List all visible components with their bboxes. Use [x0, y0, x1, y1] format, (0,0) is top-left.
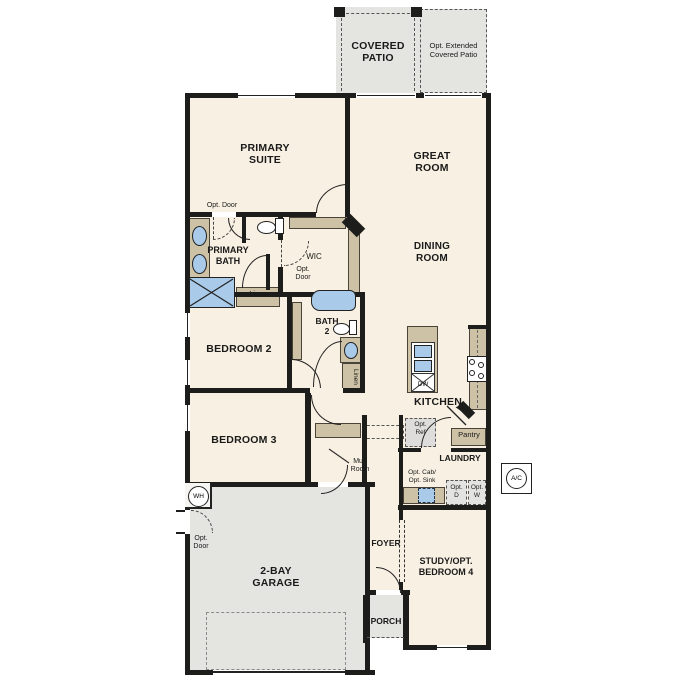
floor-plan: WH A/C COVERED PATIO Opt. Extended Cover… [0, 0, 687, 687]
opt-washer-label: Opt. W [468, 484, 486, 499]
window [437, 645, 467, 650]
opt-cab-sink-label: Opt. Cab/ Opt. Sink [398, 469, 446, 484]
wall [345, 670, 375, 675]
patio-post [411, 7, 422, 17]
opt-cabinet-outline [362, 425, 404, 439]
burner-icon [478, 373, 484, 379]
opt-opening [399, 520, 405, 582]
burner-icon [469, 370, 475, 376]
porch-label: PORCH [368, 616, 404, 626]
ac-unit-icon: A/C [506, 468, 527, 489]
bedroom2-label: BEDROOM 2 [190, 343, 288, 355]
wall [366, 590, 376, 595]
opt-door-opening [185, 510, 190, 534]
wic-wall [289, 217, 346, 229]
porch-edge [367, 637, 404, 638]
opt-door-leaf [213, 217, 214, 239]
wic-wall [348, 229, 360, 294]
dining-room-label: DINING ROOM [394, 241, 470, 265]
bath2-label: BATH 2 [308, 316, 346, 336]
door-opening [310, 388, 343, 393]
covered-patio-label: COVERED PATIO [338, 40, 418, 65]
window [185, 360, 190, 385]
parking-outline [206, 612, 346, 670]
window [185, 313, 190, 337]
opt-dryer-label: Opt. D [446, 484, 467, 499]
wall [365, 482, 370, 675]
ac-label: A/C [511, 475, 522, 482]
toilet-tank-icon [349, 320, 357, 335]
linen-label: Linen [236, 291, 280, 299]
door-leaf [266, 254, 270, 290]
wall [185, 670, 213, 675]
shower-icon [189, 277, 235, 308]
sliding-door [424, 93, 482, 98]
wall [185, 212, 212, 217]
burner-icon [469, 359, 475, 365]
garage-label: 2-BAY GARAGE [230, 565, 322, 590]
wall [236, 212, 316, 217]
wall-tick [176, 510, 185, 512]
mud-room-label: Mud Room [342, 458, 378, 475]
wall [403, 645, 437, 650]
wall-tick [176, 532, 185, 534]
opt-door-label: Opt. Door [186, 535, 216, 552]
study-label: STUDY/OPT. BEDROOM 4 [406, 556, 486, 577]
laundry-label: LAUNDRY [430, 453, 490, 463]
hall-wall [292, 302, 302, 360]
linen-label: Linen [345, 365, 359, 389]
sink-icon [344, 342, 358, 359]
study-floor [403, 512, 486, 645]
wall [363, 595, 367, 643]
primary-suite-label: PRIMARY SUITE [222, 142, 308, 167]
opt-door-opening [212, 212, 236, 217]
kitchen-label: KITCHEN [406, 396, 470, 408]
window [185, 405, 190, 431]
bedroom3-label: BEDROOM 3 [195, 434, 293, 446]
opt-ref-label: Opt. Ref [405, 421, 436, 436]
wh-label: WH [193, 493, 204, 500]
primary-bath-label: PRIMARY BATH [199, 245, 257, 266]
wall [348, 482, 375, 487]
sink-icon [192, 226, 207, 246]
water-heater-icon: WH [188, 486, 209, 507]
mud-room-bench [315, 423, 361, 438]
sink-basin-icon [414, 345, 432, 358]
wall [467, 645, 491, 650]
opt-door-label: Opt. Door [288, 266, 318, 283]
burner-icon [478, 362, 484, 368]
opt-sink-outline [418, 488, 435, 503]
foyer-label: FOYER [368, 538, 404, 548]
wall [305, 388, 311, 482]
toilet-tank-icon [275, 218, 284, 234]
wall [451, 448, 491, 452]
wall [360, 292, 365, 392]
great-room-label: GREAT ROOM [394, 150, 470, 175]
sliding-door [356, 93, 416, 98]
sink-basin-icon [414, 360, 432, 372]
toilet-icon [257, 221, 276, 234]
wall [185, 534, 190, 675]
opt-door-label: Opt. Door [198, 202, 246, 210]
window [238, 93, 295, 98]
wall [398, 448, 421, 452]
wall [468, 325, 491, 329]
pantry-label: Pantry [452, 431, 486, 440]
patio-post [334, 7, 345, 17]
garage-door [213, 671, 345, 673]
wall [398, 505, 491, 510]
opt-door-leaf [281, 240, 282, 267]
wall [185, 388, 307, 393]
dishwasher-label: DW [411, 381, 435, 389]
wic-label: WIC [296, 252, 332, 261]
ext-patio-label: Opt. Extended Covered Patio [419, 42, 488, 60]
bathtub-icon [311, 290, 356, 311]
